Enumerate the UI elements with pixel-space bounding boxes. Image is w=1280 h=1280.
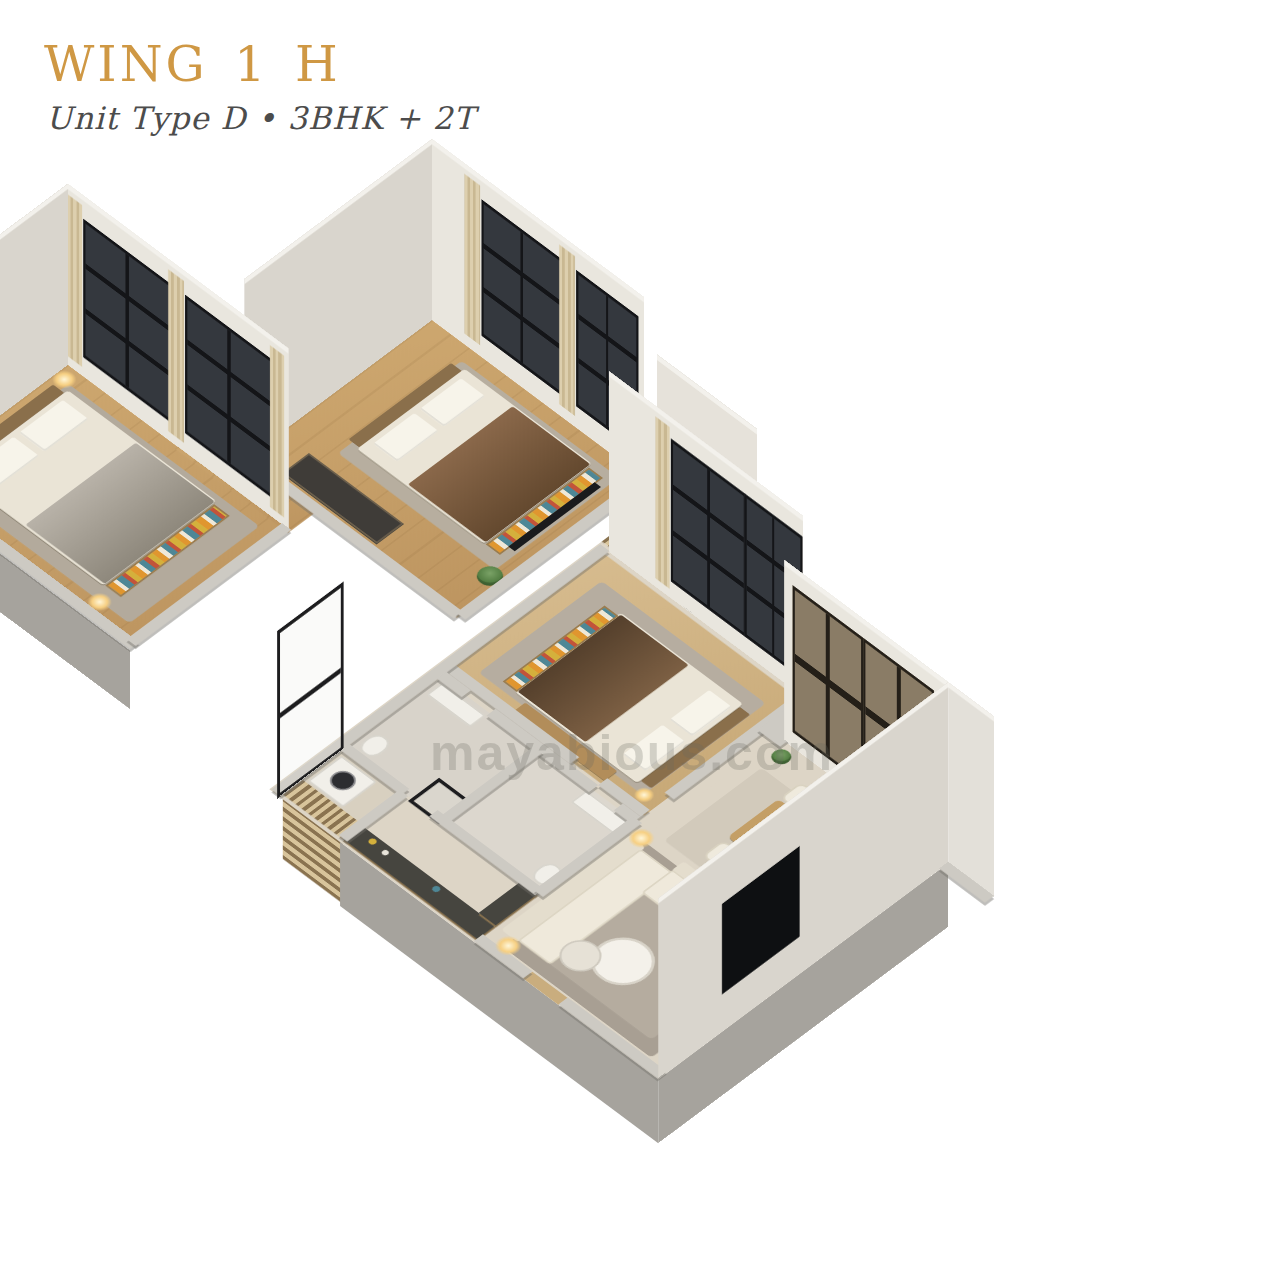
curtain <box>68 194 82 366</box>
curtain <box>270 345 284 517</box>
tv-screen <box>722 846 800 995</box>
watermark: mayabious.com <box>430 724 834 782</box>
glass-mullion <box>280 668 341 719</box>
brochure-page: WING 1 H Unit Type D • 3BHK + 2T <box>0 0 1280 1280</box>
floor-plan-3d: mayabious.com <box>0 0 1280 1280</box>
neighbour-wing-wall <box>948 682 994 897</box>
curtain <box>168 269 184 442</box>
curtain <box>559 245 575 416</box>
curtain <box>465 174 481 345</box>
curtain <box>655 416 669 588</box>
